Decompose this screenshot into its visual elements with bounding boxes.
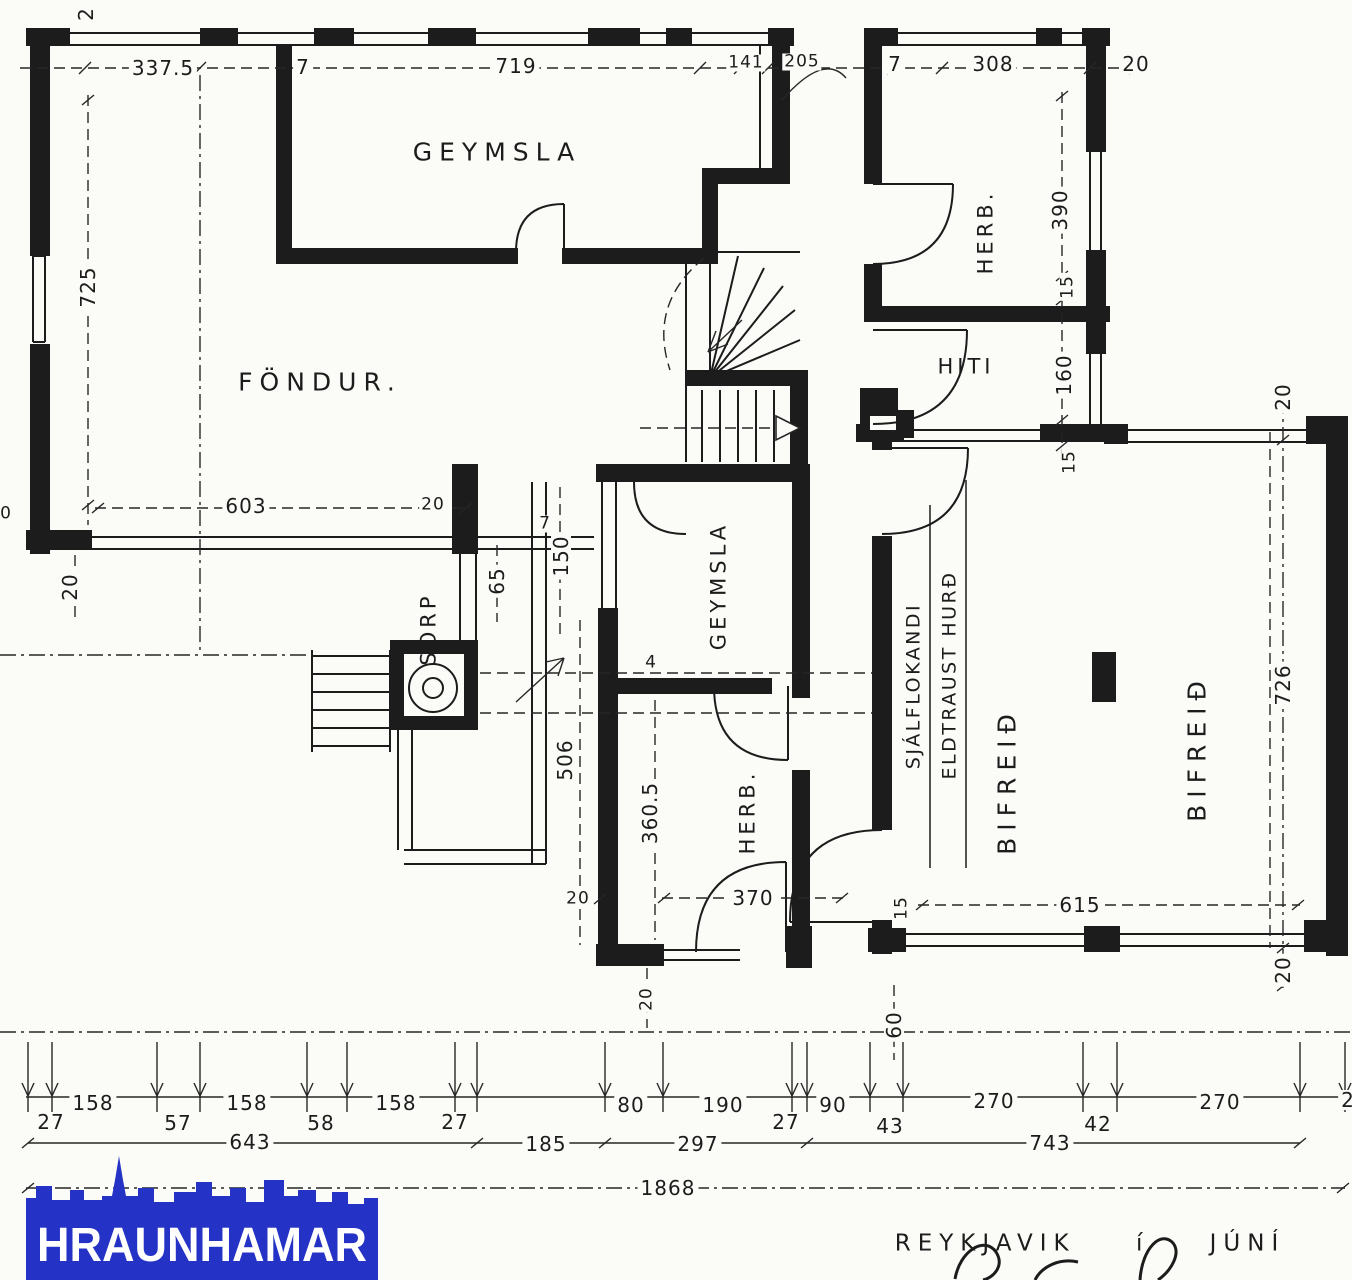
dim-65: 65 — [487, 564, 507, 597]
logo-text: HRAUNHAMAR — [26, 1209, 378, 1280]
dim-lines-dashed — [20, 68, 1300, 1060]
correction-scribble — [782, 69, 846, 100]
room-label-bifreid-right: BIFREIÐ — [1185, 674, 1210, 822]
dim-15-a: 15 — [1060, 273, 1077, 301]
dim-308: 308 — [969, 54, 1016, 74]
dim-158-a: 158 — [69, 1093, 116, 1113]
dim-190: 190 — [699, 1095, 746, 1115]
door-corridor — [634, 482, 686, 534]
dim-205: 205 — [782, 54, 821, 71]
room-label-geymsla-top: GEYMSLA — [413, 140, 581, 165]
place-date-text: REYKJAVIK í JÚNÍ — [895, 1233, 1286, 1256]
dim-150: 150 — [551, 532, 571, 579]
dim-20-top-right: 20 — [1119, 54, 1152, 74]
dim-20-garage-top: 20 — [1273, 380, 1293, 413]
dim-270-b: 270 — [1196, 1092, 1243, 1112]
dim-270-a: 270 — [970, 1091, 1017, 1111]
dim-337-5: 337.5 — [129, 58, 197, 78]
dim-lines-solid — [22, 62, 1352, 1193]
sorp-chute-circle — [409, 664, 457, 712]
room-label-fondur: FÖNDUR. — [238, 370, 402, 395]
dim-7-b: 7 — [885, 54, 905, 74]
dim-185: 185 — [522, 1134, 569, 1154]
exterior-steps — [312, 650, 390, 752]
dim-743: 743 — [1026, 1133, 1073, 1153]
hraunhamar-logo: HRAUNHAMAR — [26, 1152, 378, 1280]
dim-15-b: 15 — [1062, 448, 1079, 476]
tick-marks — [22, 62, 1349, 1193]
dim-506: 506 — [555, 736, 575, 783]
dim-2-top-left: 2 — [76, 4, 96, 24]
dim-lines-dashdot — [0, 75, 1352, 1188]
dim-603: 603 — [222, 496, 269, 516]
dim-58: 58 — [304, 1113, 337, 1133]
dim-20-garage-bottom: 20 — [1273, 953, 1293, 986]
dim-20-fondur: 20 — [419, 497, 447, 514]
dim-643: 643 — [226, 1132, 273, 1152]
dim-20-left: 20 — [60, 570, 80, 603]
door-garage-fire — [882, 448, 968, 534]
dim-7-c: 7 — [537, 516, 553, 533]
logo-band: HRAUNHAMAR — [26, 1212, 378, 1280]
entry-arrow — [516, 658, 564, 702]
dim-60: 60 — [884, 1008, 904, 1041]
dim-20-herb: 20 — [564, 891, 592, 908]
dim-726: 726 — [1273, 661, 1293, 708]
dim-27-b: 27 — [438, 1112, 471, 1132]
dim-719: 719 — [492, 56, 539, 76]
dim-43: 43 — [873, 1116, 906, 1136]
room-label-sorp: SORP — [419, 592, 440, 665]
dim-158-c: 158 — [372, 1093, 419, 1113]
dim-297: 297 — [674, 1134, 721, 1154]
dim-725: 725 — [78, 263, 98, 310]
dim-80: 80 — [614, 1095, 647, 1115]
room-label-herb-top-right: HERB. — [976, 190, 997, 275]
door-herb-center — [714, 686, 788, 760]
floor-plan-sheet: GEYMSLA FÖNDUR. HERB. HITI GEYMSLA HERB.… — [0, 0, 1352, 1280]
dim-4: 4 — [643, 655, 659, 672]
dim-1868: 1868 — [638, 1178, 699, 1198]
dim-27-c: 27 — [769, 1112, 802, 1132]
dim-370: 370 — [729, 888, 776, 908]
dim-2-edge: 2 — [1338, 1090, 1352, 1110]
note-fire-door-line2: ELDTRAUST HURÐ — [941, 571, 960, 780]
dim-90: 90 — [816, 1095, 849, 1115]
dim-57: 57 — [161, 1113, 194, 1133]
dim-0-edge: 0 — [0, 506, 14, 523]
dim-7-a: 7 — [293, 57, 313, 77]
dim-20-below: 20 — [639, 985, 656, 1013]
dim-42: 42 — [1081, 1114, 1114, 1134]
door-geymsla-top — [516, 204, 564, 252]
room-label-hiti: HITI — [937, 357, 994, 378]
dim-15-c: 15 — [894, 894, 911, 922]
car-block — [1092, 652, 1116, 702]
room-label-geymsla-center: GEYMSLA — [709, 522, 730, 650]
room-label-bifreid-left: BIFREIÐ — [995, 707, 1020, 855]
dim-360-5: 360.5 — [640, 779, 660, 847]
dim-141: 141 — [726, 55, 765, 72]
dim-615: 615 — [1056, 895, 1103, 915]
room-label-herb-center: HERB. — [738, 770, 759, 855]
dim-160: 160 — [1054, 351, 1074, 398]
note-fire-door-line1: SJÁLFLOKANDI — [905, 603, 924, 769]
dim-arrowheads — [22, 1083, 1351, 1096]
floor-plan-drawing — [0, 0, 1352, 1280]
door-herb-top-right — [873, 184, 953, 264]
dim-27-a: 27 — [34, 1112, 67, 1132]
dim-390: 390 — [1050, 186, 1070, 233]
dim-158-b: 158 — [223, 1093, 270, 1113]
